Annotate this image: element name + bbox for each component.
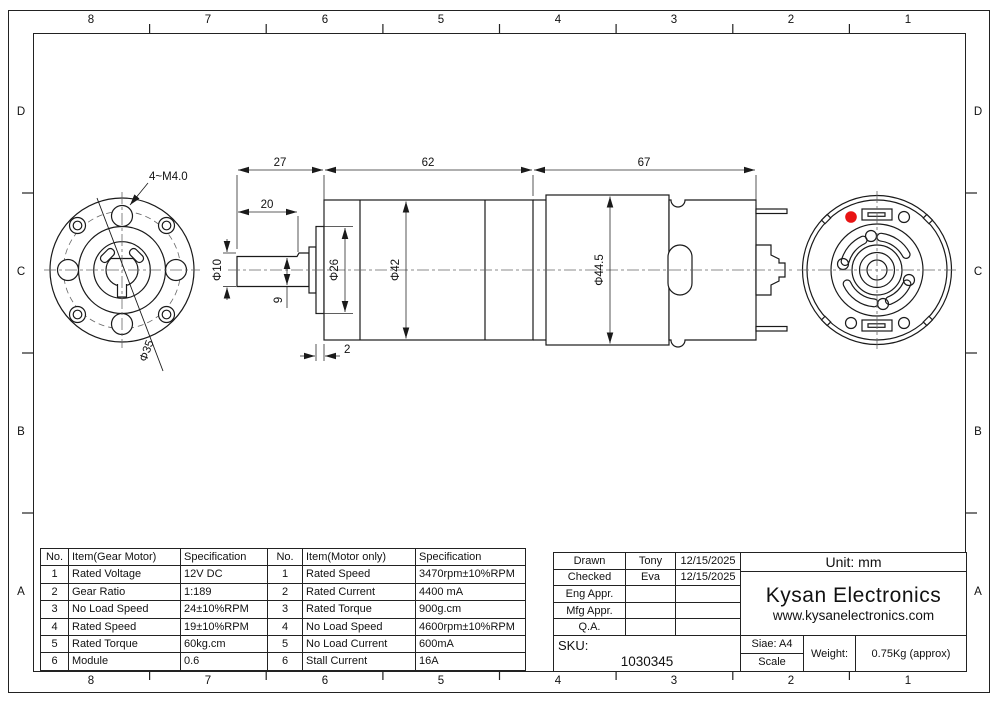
- cell-spec: 24±10%RPM: [181, 601, 268, 618]
- title-block: Drawn Tony 12/15/2025 Checked Eva 12/15/…: [553, 552, 967, 672]
- motor-only-spec-table: No. Item(Motor only) Specification 1 Rat…: [267, 548, 526, 671]
- approval-name: Tony: [626, 553, 676, 570]
- dim-plate-thickness: 2: [344, 344, 350, 356]
- cell-no: 5: [41, 636, 69, 653]
- dim-front-boss-diameter: Φ26: [329, 259, 341, 281]
- cell-no: 3: [41, 601, 69, 618]
- approval-date: 12/15/2025: [676, 570, 741, 587]
- cell-no: 4: [268, 618, 303, 635]
- table-row: 2 Rated Current 4400 mA: [268, 583, 526, 600]
- cell-item: Module: [69, 653, 181, 670]
- cell-item: Stall Current: [303, 653, 416, 670]
- cell-spec: 900g.cm: [416, 601, 526, 618]
- front-centerlines: [44, 192, 200, 348]
- col-header-spec: Specification: [416, 549, 526, 566]
- front-view: [44, 192, 200, 371]
- dim-gearbox-length: 62: [422, 157, 435, 169]
- cell-spec: 19±10%RPM: [181, 618, 268, 635]
- cell-spec: 12V DC: [181, 566, 268, 583]
- col-header-item: Item(Motor only): [303, 549, 416, 566]
- cell-item: Rated Speed: [303, 566, 416, 583]
- sku-value: 1030345: [558, 654, 736, 669]
- cell-item: Rated Current: [303, 583, 416, 600]
- cell-no: 1: [41, 566, 69, 583]
- col-header-spec: Specification: [181, 549, 268, 566]
- dim-flat-length: 20: [261, 199, 274, 211]
- cell-item: Rated Voltage: [69, 566, 181, 583]
- rear-centerlines: [797, 191, 957, 349]
- table-row: 5 No Load Current 600mA: [268, 636, 526, 653]
- cell-item: No Load Speed: [303, 618, 416, 635]
- approval-label: Checked: [554, 570, 626, 587]
- table-row: 4 No Load Speed 4600rpm±10%RPM: [268, 618, 526, 635]
- weight-label-box: Weight:: [804, 636, 856, 671]
- approval-date: [676, 619, 741, 636]
- cell-no: 1: [268, 566, 303, 583]
- table-row: 5 Rated Torque 60kg.cm: [41, 636, 268, 653]
- dim-motor-length: 67: [638, 157, 651, 169]
- polarity-red-dot: [845, 211, 857, 223]
- scale-box: Scale: [741, 654, 804, 672]
- cell-spec: 4400 mA: [416, 583, 526, 600]
- size-box: Siae: A4: [741, 636, 804, 654]
- cell-spec: 16A: [416, 653, 526, 670]
- approval-label: Drawn: [554, 553, 626, 570]
- approval-name: [626, 586, 676, 603]
- cell-spec: 1:189: [181, 583, 268, 600]
- cell-spec: 600mA: [416, 636, 526, 653]
- table-row: 3 No Load Speed 24±10%RPM: [41, 601, 268, 618]
- cell-spec: 60kg.cm: [181, 636, 268, 653]
- cell-no: 4: [41, 618, 69, 635]
- cell-item: Gear Ratio: [69, 583, 181, 600]
- table-row: 3 Rated Torque 900g.cm: [268, 601, 526, 618]
- cell-spec: 4600rpm±10%RPM: [416, 618, 526, 635]
- table-row: 2 Gear Ratio 1:189: [41, 583, 268, 600]
- sku-label: SKU:: [558, 638, 588, 653]
- dim-motor-diameter: Φ44.5: [594, 254, 606, 286]
- table-row: 4 Rated Speed 19±10%RPM: [41, 618, 268, 635]
- terminal-pin: [756, 209, 787, 214]
- approval-label: Eng Appr.: [554, 586, 626, 603]
- approval-name: [626, 603, 676, 620]
- dim-shaft-length: 27: [274, 157, 287, 169]
- cell-no: 6: [41, 653, 69, 670]
- approval-name: [626, 619, 676, 636]
- approval-name: Eva: [626, 570, 676, 587]
- weight-value-box: 0.75Kg (approx): [856, 636, 966, 671]
- dim-shaft-diameter: Φ10: [212, 259, 224, 281]
- cell-no: 6: [268, 653, 303, 670]
- table-row: 1 Rated Speed 3470rpm±10%RPM: [268, 566, 526, 583]
- cell-item: Rated Speed: [69, 618, 181, 635]
- rear-view: [797, 191, 957, 349]
- unit-box: Unit: mm: [741, 553, 966, 572]
- cell-spec: 3470rpm±10%RPM: [416, 566, 526, 583]
- dim-gearbox-diameter: Φ42: [390, 259, 402, 281]
- sku-box: SKU: 1030345: [554, 636, 741, 671]
- approval-label: Mfg Appr.: [554, 603, 626, 620]
- cell-item: Rated Torque: [303, 601, 416, 618]
- company-website: www.kysanelectronics.com: [773, 608, 934, 623]
- dim-shaft-flat: 9: [273, 297, 285, 303]
- col-header-item: Item(Gear Motor): [69, 549, 181, 566]
- table-row: 1 Rated Voltage 12V DC: [41, 566, 268, 583]
- cell-item: No Load Speed: [69, 601, 181, 618]
- side-view: [237, 195, 787, 347]
- cell-no: 2: [41, 583, 69, 600]
- cell-no: 5: [268, 636, 303, 653]
- cell-item: Rated Torque: [69, 636, 181, 653]
- col-header-no: No.: [268, 549, 303, 566]
- approval-date: 12/15/2025: [676, 553, 741, 570]
- approval-date: [676, 603, 741, 620]
- drawing-sheet: 8 7 6 5 4 3 2 1 8 7 6 5 4 3 2 1 D C B A …: [0, 0, 1000, 707]
- table-row: 6 Module 0.6: [41, 653, 268, 670]
- approval-date: [676, 586, 741, 603]
- table-row: 6 Stall Current 16A: [268, 653, 526, 670]
- cell-no: 2: [268, 583, 303, 600]
- cell-spec: 0.6: [181, 653, 268, 670]
- col-header-no: No.: [41, 549, 69, 566]
- approval-label: Q.A.: [554, 619, 626, 636]
- dim-mounting-holes: 4~M4.0: [149, 171, 188, 183]
- company-box: Kysan Electronics www.kysanelectronics.c…: [741, 572, 966, 637]
- cell-item: No Load Current: [303, 636, 416, 653]
- gear-motor-spec-table: No. Item(Gear Motor) Specification 1 Rat…: [40, 548, 268, 671]
- cell-no: 3: [268, 601, 303, 618]
- dim-bolt-circle: Φ35: [138, 339, 157, 364]
- terminal-pin: [756, 327, 787, 332]
- company-name: Kysan Electronics: [766, 584, 941, 608]
